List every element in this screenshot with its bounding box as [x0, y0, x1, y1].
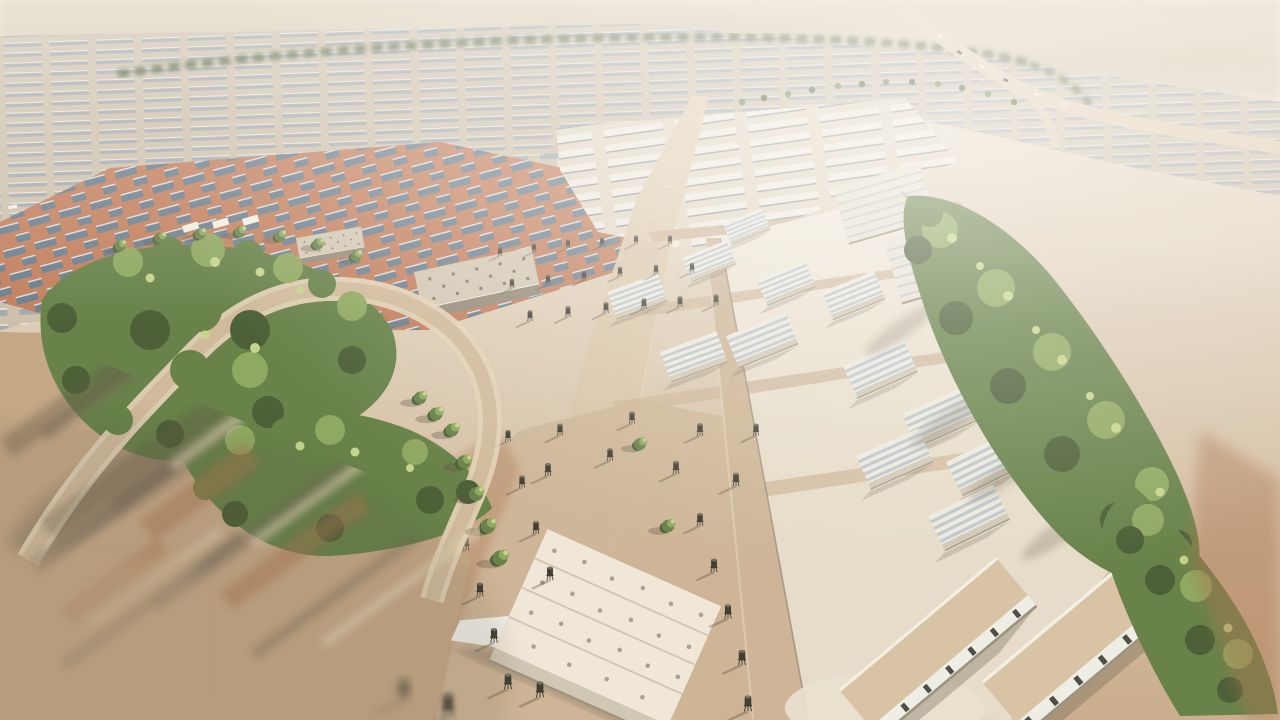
- atmosphere: [0, 0, 1280, 720]
- aerial-render: Hazy desert horizon Distant rows of camp…: [0, 0, 1280, 720]
